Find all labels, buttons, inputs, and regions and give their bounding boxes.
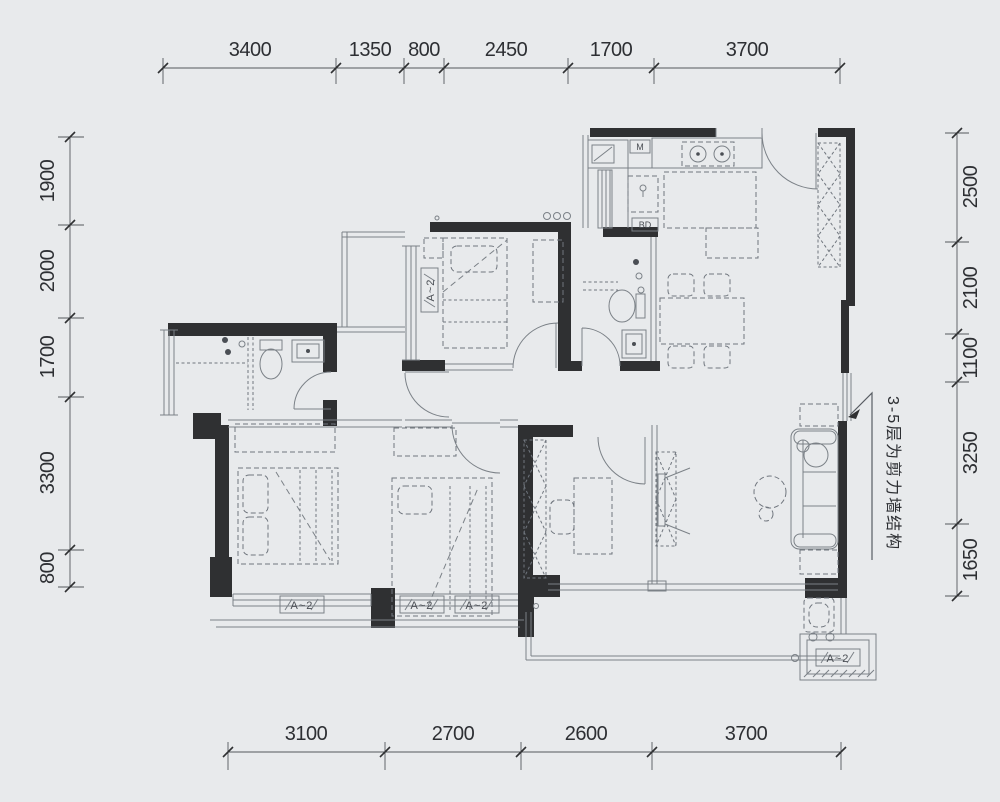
study: [524, 440, 690, 578]
bd-label: BD: [639, 220, 652, 230]
wardrobe: [235, 424, 335, 452]
window-tag-label: A~2: [291, 600, 314, 612]
dim-right-3: 1100: [960, 337, 982, 378]
sofa-armrest: [794, 534, 836, 547]
window-bedroom2: [402, 246, 420, 360]
dim-left-2: 2000: [37, 249, 59, 292]
bath-right-wall: [651, 237, 656, 361]
corridor-door: [405, 372, 449, 417]
nightstand: [424, 238, 443, 258]
bed: [392, 478, 492, 616]
dim-right-2: 2100: [960, 266, 982, 309]
dim-top-5: 1700: [590, 39, 633, 61]
bath-door: [582, 328, 620, 366]
washer-drum: [809, 603, 829, 627]
dining-chair: [704, 346, 730, 368]
living-room: [754, 404, 838, 574]
pillow: [451, 246, 497, 272]
entry-cabinet-column: [818, 143, 840, 267]
tv-wall: [652, 425, 657, 584]
dining-area: [660, 274, 744, 368]
faucet-icon: [640, 185, 646, 191]
dimension-bottom: 3100 2700 2600 3700: [223, 723, 846, 770]
balcony-sliding-door: [548, 584, 838, 590]
dim-top-6: 3700: [726, 39, 769, 61]
pillow: [243, 475, 268, 513]
window-master-bath: [160, 330, 178, 415]
floorplan-drawing: 3400 1350 800 2450 1700 3700 3100 2700 2…: [0, 0, 1000, 802]
window-tag-balcony: A~2: [816, 649, 860, 666]
shaft-edge: [342, 232, 405, 327]
dim-top-4: 2450: [485, 39, 528, 61]
window-tag-label: A~2: [466, 600, 489, 612]
dining-table: [660, 298, 744, 344]
dim-left-4: 3300: [37, 451, 59, 494]
corridor-top-wall: [337, 327, 405, 332]
side-table: [800, 550, 838, 574]
bedroom3: [392, 428, 492, 616]
dimension-left: 1900 2000 1700 3300 800: [37, 132, 84, 592]
dim-bottom-3: 2600: [565, 723, 608, 745]
dim-left-1: 1900: [37, 159, 59, 202]
bed: [443, 238, 507, 348]
side-table: [800, 404, 838, 426]
study-door: [598, 437, 645, 484]
wardrobe: [394, 428, 456, 456]
dim-right-4: 3250: [960, 431, 982, 474]
dining-chair: [704, 274, 730, 296]
toilet-icon: [609, 290, 635, 322]
sofa-pillow: [804, 443, 828, 467]
kitchen: M BD: [588, 138, 840, 267]
bed: [238, 468, 338, 564]
dim-bottom-1: 3100: [285, 723, 328, 745]
entry-jambs: [716, 128, 762, 137]
dim-top-1: 3400: [229, 39, 272, 61]
walls: [168, 128, 855, 637]
tv-icon: [658, 474, 665, 526]
small-bath: [583, 259, 646, 358]
dim-bottom-4: 3700: [725, 723, 768, 745]
desk: [574, 478, 612, 554]
window-tag-label: A~2: [411, 600, 434, 612]
coffee-table: [754, 476, 786, 508]
kitchen-shaft-window: [583, 135, 588, 228]
dim-right-5: 1650: [960, 538, 982, 581]
window-tag-bedroom3-left: A~2: [400, 596, 444, 613]
kitchen-island: [664, 172, 756, 228]
window-tag-bedroom2: A~2: [421, 268, 438, 312]
window-tag-label: A~2: [425, 279, 437, 302]
pillow: [243, 517, 268, 555]
island-table: [706, 228, 758, 258]
dimension-right: 2500 2100 1100 3250 1650: [945, 128, 982, 601]
toilet-icon: [260, 349, 282, 379]
window-tag-master: A~2: [280, 596, 324, 613]
entry-door: [762, 133, 818, 189]
window-tag-label: A~2: [827, 653, 850, 665]
dim-left-3: 1700: [37, 335, 59, 378]
dim-bottom-2: 2700: [432, 723, 475, 745]
toilet-tank: [636, 294, 645, 318]
annotation-text: 3-5层为剪力墙结构: [884, 396, 902, 551]
pillow: [398, 486, 432, 514]
dim-top-3: 800: [408, 39, 440, 61]
master-bedroom: [235, 424, 338, 564]
shower-screen: [583, 282, 618, 290]
sofa: [791, 429, 838, 549]
balcony-rail: [526, 598, 846, 660]
shear-wall-annotation: 3-5层为剪力墙结构: [848, 393, 902, 560]
dim-left-5: 800: [37, 552, 59, 584]
bedroom3-door: [452, 423, 500, 473]
dim-top-2: 1350: [349, 39, 392, 61]
bedroom2-bottom-wall: [445, 364, 513, 370]
microwave-label: M: [636, 142, 644, 152]
dining-chair: [668, 346, 694, 368]
bedroom2-door: [513, 323, 558, 368]
desk-chair: [550, 500, 574, 534]
stool: [759, 507, 773, 521]
dimension-top: 3400 1350 800 2450 1700 3700: [158, 39, 845, 84]
kitchen-sink-counter: [588, 140, 628, 168]
shower-divider: [176, 337, 253, 410]
balcony: [534, 598, 835, 662]
floorplan-page: 3400 1350 800 2450 1700 3700 3100 2700 2…: [0, 0, 1000, 802]
sofa-armrest: [794, 431, 836, 444]
bedroom2: [424, 213, 571, 349]
tv-cabinet: [656, 452, 690, 546]
master-bath: [176, 337, 324, 410]
sill-lines: [210, 620, 524, 627]
window-living: [843, 373, 851, 421]
dim-right-1: 2500: [960, 165, 982, 208]
dining-chair: [668, 274, 694, 296]
